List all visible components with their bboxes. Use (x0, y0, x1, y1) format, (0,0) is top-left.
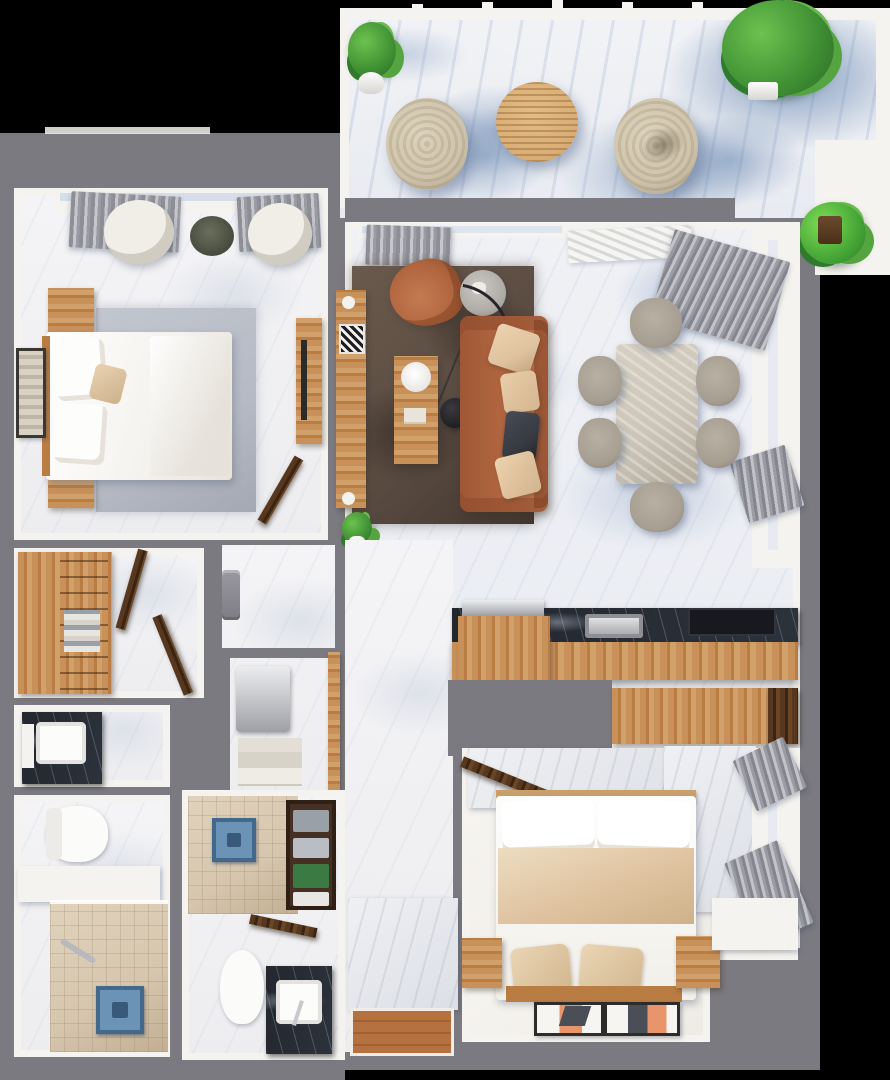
woven-pouf-left (386, 98, 468, 190)
bedroom2-pillow (501, 798, 595, 853)
bath2-shower-fixture (212, 818, 256, 862)
utility-wall-left (222, 648, 230, 793)
terrace-edge-left (340, 8, 349, 208)
tv-console (336, 290, 366, 508)
kitchen-wall-chunk (448, 680, 612, 756)
kitchen-sink (585, 614, 643, 638)
bath1-mirror-panel (22, 724, 34, 768)
dining-chair-right-2 (696, 418, 740, 468)
master-dresser (296, 318, 322, 444)
niche-towel-gray (293, 810, 329, 832)
floorplan-render (0, 0, 890, 1080)
master-nightstand-top (48, 288, 94, 332)
terrace-rail-post (482, 2, 493, 16)
utility-drawers (238, 738, 302, 786)
console-decor-zigzag (339, 324, 365, 354)
terrace-rail-post (552, 0, 563, 14)
sofa-pillow-beige (499, 370, 540, 415)
water-heater (236, 666, 290, 732)
wall-intercom (222, 570, 240, 620)
bedroom2-floor-art-2 (604, 1002, 680, 1036)
dining-table (616, 344, 698, 484)
terrace-plant-right-large (722, 0, 834, 96)
terrace-rail-post (692, 2, 703, 16)
entry-wall-block (348, 898, 458, 1010)
dining-chair-right-1 (696, 356, 740, 406)
utility-door-frame (328, 652, 340, 790)
bedroom2-pillow (597, 798, 691, 853)
plant-pot (358, 72, 384, 94)
bedroom2-nightstand-left (462, 938, 502, 988)
roof-sliver-top-left (45, 127, 210, 134)
terrace-rail-post (412, 4, 423, 16)
bedroom2-bed-platform (506, 986, 682, 1002)
bath1-shower-fixture (96, 986, 144, 1034)
bath1-toilet-tank (46, 808, 62, 860)
console-decor-round (342, 492, 355, 505)
plant-pot (818, 216, 842, 244)
master-leaning-art (16, 348, 46, 438)
terrace-plant-left (348, 22, 396, 78)
entry-wood-floor (350, 1008, 454, 1056)
master-round-rug (190, 216, 234, 256)
round-slat-table (496, 82, 578, 162)
master-dresser-tv (301, 340, 307, 420)
bath2-toilet (220, 950, 264, 1024)
niche-towel-white (293, 892, 329, 906)
utility-wall-top (222, 648, 335, 658)
niche-towel-green (293, 864, 329, 888)
dining-chair-left-2 (578, 418, 622, 468)
bedroom2-blanket-beige (498, 848, 694, 924)
master-pillow (54, 402, 108, 465)
dining-chair-bottom (630, 482, 684, 532)
kitchen-island-dark-end (768, 688, 798, 744)
kitchen-left-appliance (462, 600, 544, 616)
coffee-table-bowl (401, 362, 431, 392)
terrace-rail-post (622, 2, 633, 16)
bedroom2-step-corner (712, 898, 798, 950)
master-lounge-chair-left (104, 200, 174, 264)
master-lounge-chair-right (248, 203, 312, 265)
terrace-parapet-wall (345, 198, 735, 222)
plant-pot (748, 82, 778, 100)
bath1-basin (36, 722, 86, 764)
coffee-table-book (404, 408, 426, 422)
console-decor-round (342, 296, 355, 309)
dining-chair-left-1 (578, 356, 622, 406)
master-duvet-fold (150, 336, 230, 476)
niche-towel-gray (293, 838, 329, 858)
kitchen-island (612, 688, 770, 744)
dining-chair-top (630, 298, 682, 348)
kitchen-cooktop (688, 608, 776, 636)
shower-glass (50, 900, 168, 904)
wardrobe-towels (64, 610, 100, 652)
bath1-bench-counter (18, 866, 160, 902)
